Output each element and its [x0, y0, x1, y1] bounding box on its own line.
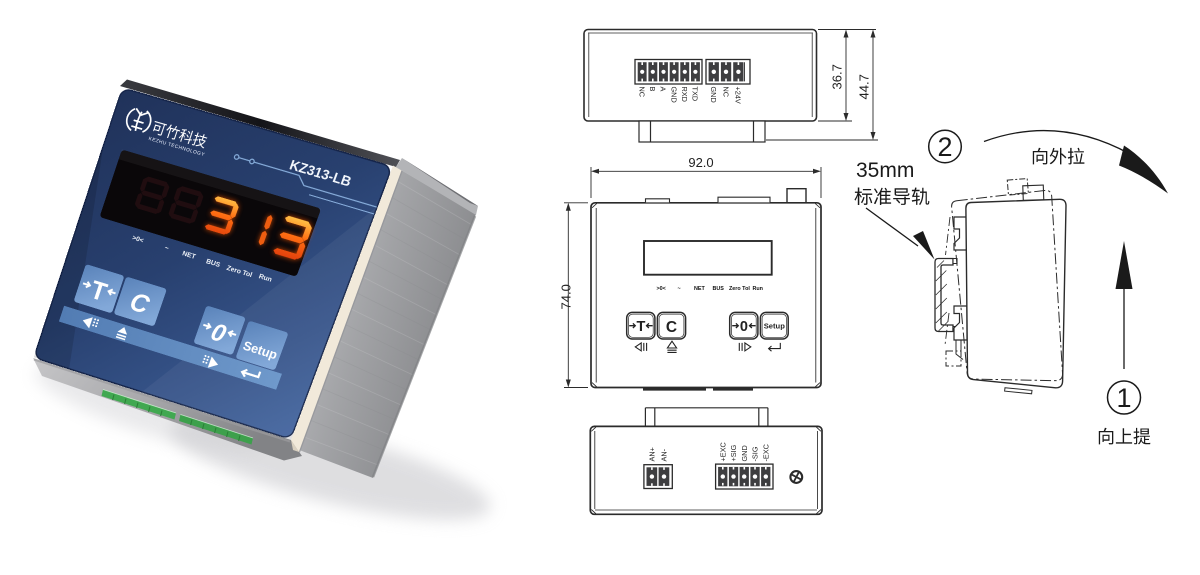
svg-text:0: 0 — [740, 319, 748, 335]
svg-text:~: ~ — [678, 286, 681, 292]
svg-text:GND: GND — [709, 87, 718, 103]
svg-text:+24V: +24V — [734, 87, 743, 104]
svg-text:GND: GND — [669, 87, 678, 103]
svg-text:NC: NC — [637, 87, 646, 98]
svg-text:Run: Run — [753, 286, 763, 292]
svg-text:B: B — [648, 87, 657, 92]
svg-text:1: 1 — [1116, 383, 1131, 413]
svg-text:2: 2 — [937, 132, 952, 162]
svg-text:AN-: AN- — [660, 448, 669, 461]
svg-text:BUS: BUS — [713, 286, 725, 292]
svg-text:TXD: TXD — [691, 87, 700, 102]
svg-text:A: A — [659, 87, 668, 92]
svg-text:NET: NET — [694, 286, 705, 292]
svg-text:92.0: 92.0 — [688, 155, 713, 170]
svg-text:74.0: 74.0 — [559, 284, 574, 309]
svg-text:44.7: 44.7 — [857, 74, 872, 99]
svg-text:AN+: AN+ — [648, 447, 657, 461]
svg-text:GND: GND — [740, 445, 749, 461]
svg-text:+SIG: +SIG — [729, 444, 738, 461]
svg-text:-EXC: -EXC — [762, 444, 771, 461]
svg-text:C: C — [666, 319, 677, 336]
svg-text:-SIG: -SIG — [751, 446, 760, 461]
svg-text:Setup: Setup — [764, 322, 785, 331]
svg-text:35mm: 35mm — [856, 159, 914, 182]
svg-text:T: T — [636, 319, 645, 335]
svg-text:NC: NC — [721, 87, 730, 98]
svg-text:+EXC: +EXC — [719, 442, 728, 461]
svg-text:>0<: >0< — [657, 286, 666, 292]
svg-text:36.7: 36.7 — [830, 64, 845, 89]
svg-text:RXD: RXD — [680, 87, 689, 102]
svg-text:Zero Tol: Zero Tol — [729, 286, 750, 292]
